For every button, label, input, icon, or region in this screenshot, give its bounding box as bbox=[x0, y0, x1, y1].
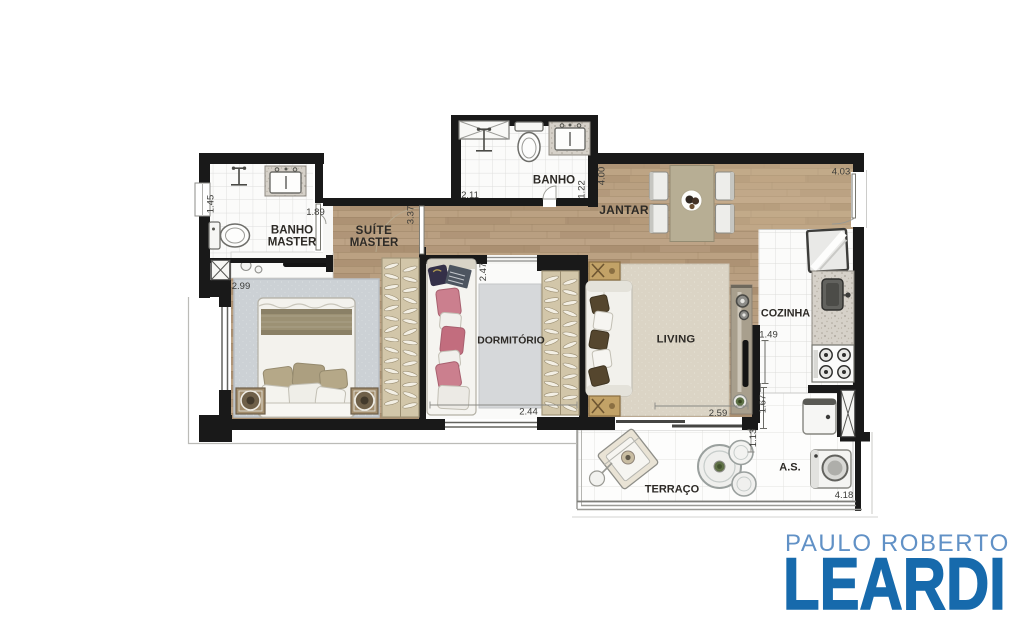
svg-text:2.44: 2.44 bbox=[519, 407, 538, 418]
svg-text:LIVING: LIVING bbox=[657, 334, 696, 346]
svg-text:4.00: 4.00 bbox=[597, 167, 608, 186]
svg-text:4.18: 4.18 bbox=[835, 490, 854, 501]
svg-text:1.67: 1.67 bbox=[758, 395, 769, 414]
svg-text:1.13: 1.13 bbox=[748, 429, 759, 448]
svg-text:1.89: 1.89 bbox=[306, 207, 325, 218]
svg-text:2.99: 2.99 bbox=[232, 281, 251, 292]
svg-text:2.11: 2.11 bbox=[461, 190, 479, 201]
svg-text:JANTAR: JANTAR bbox=[599, 203, 649, 217]
svg-text:MASTER: MASTER bbox=[350, 237, 399, 249]
svg-text:MASTER: MASTER bbox=[268, 237, 317, 249]
svg-text:3.37: 3.37 bbox=[406, 206, 417, 225]
svg-text:2.47: 2.47 bbox=[478, 263, 489, 282]
svg-text:BANHO: BANHO bbox=[271, 225, 313, 237]
svg-text:2.59: 2.59 bbox=[709, 408, 728, 419]
svg-text:SUÍTE: SUÍTE bbox=[356, 224, 393, 237]
svg-text:1.22: 1.22 bbox=[577, 180, 588, 199]
svg-text:DORMITÓRIO: DORMITÓRIO bbox=[477, 334, 545, 347]
svg-text:COZINHA: COZINHA bbox=[761, 308, 810, 320]
svg-text:TERRAÇO: TERRAÇO bbox=[645, 484, 700, 496]
svg-text:1.49: 1.49 bbox=[759, 330, 778, 341]
svg-text:1.45: 1.45 bbox=[206, 195, 217, 214]
svg-text:4.03: 4.03 bbox=[832, 167, 851, 178]
svg-text:A.S.: A.S. bbox=[779, 462, 800, 474]
svg-text:BANHO: BANHO bbox=[533, 175, 575, 187]
